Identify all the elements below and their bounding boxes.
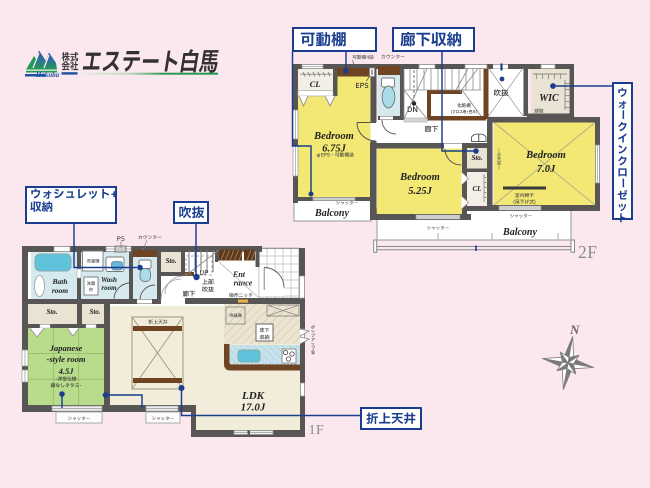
svg-text:Japanese: Japanese [49,343,83,353]
svg-text:Bedroom: Bedroom [313,131,354,142]
svg-text:1F: 1F [309,423,325,438]
svg-text:17.0J: 17.0J [241,402,266,414]
svg-text:room: room [52,286,68,295]
svg-text:CL: CL [473,185,482,193]
svg-text:Hakuba: Hakuba [35,71,60,79]
svg-text:Sto.: Sto. [89,308,100,316]
svg-text:Sto.: Sto. [165,257,176,265]
svg-text:7.0J: 7.0J [537,164,556,175]
svg-text:4.5J: 4.5J [58,366,75,376]
svg-text:-style room: -style room [47,354,86,364]
svg-text:Bath: Bath [51,277,67,286]
svg-text:CL: CL [310,79,321,89]
svg-text:rance: rance [234,279,253,288]
svg-text:LDK: LDK [241,390,265,402]
svg-text:Sto.: Sto. [471,154,482,162]
svg-text:5.25J: 5.25J [408,186,432,197]
svg-text:room: room [101,284,117,292]
svg-text:2F: 2F [578,242,597,262]
svg-text:Balcony: Balcony [502,227,537,238]
svg-text:Balcony: Balcony [314,208,349,219]
svg-text:WIC: WIC [539,93,559,104]
svg-text:N: N [569,322,580,337]
svg-text:Sto.: Sto. [46,308,57,316]
svg-text:Wash: Wash [101,276,117,284]
svg-text:Bedroom: Bedroom [399,172,440,183]
svg-text:Bedroom: Bedroom [525,150,566,161]
